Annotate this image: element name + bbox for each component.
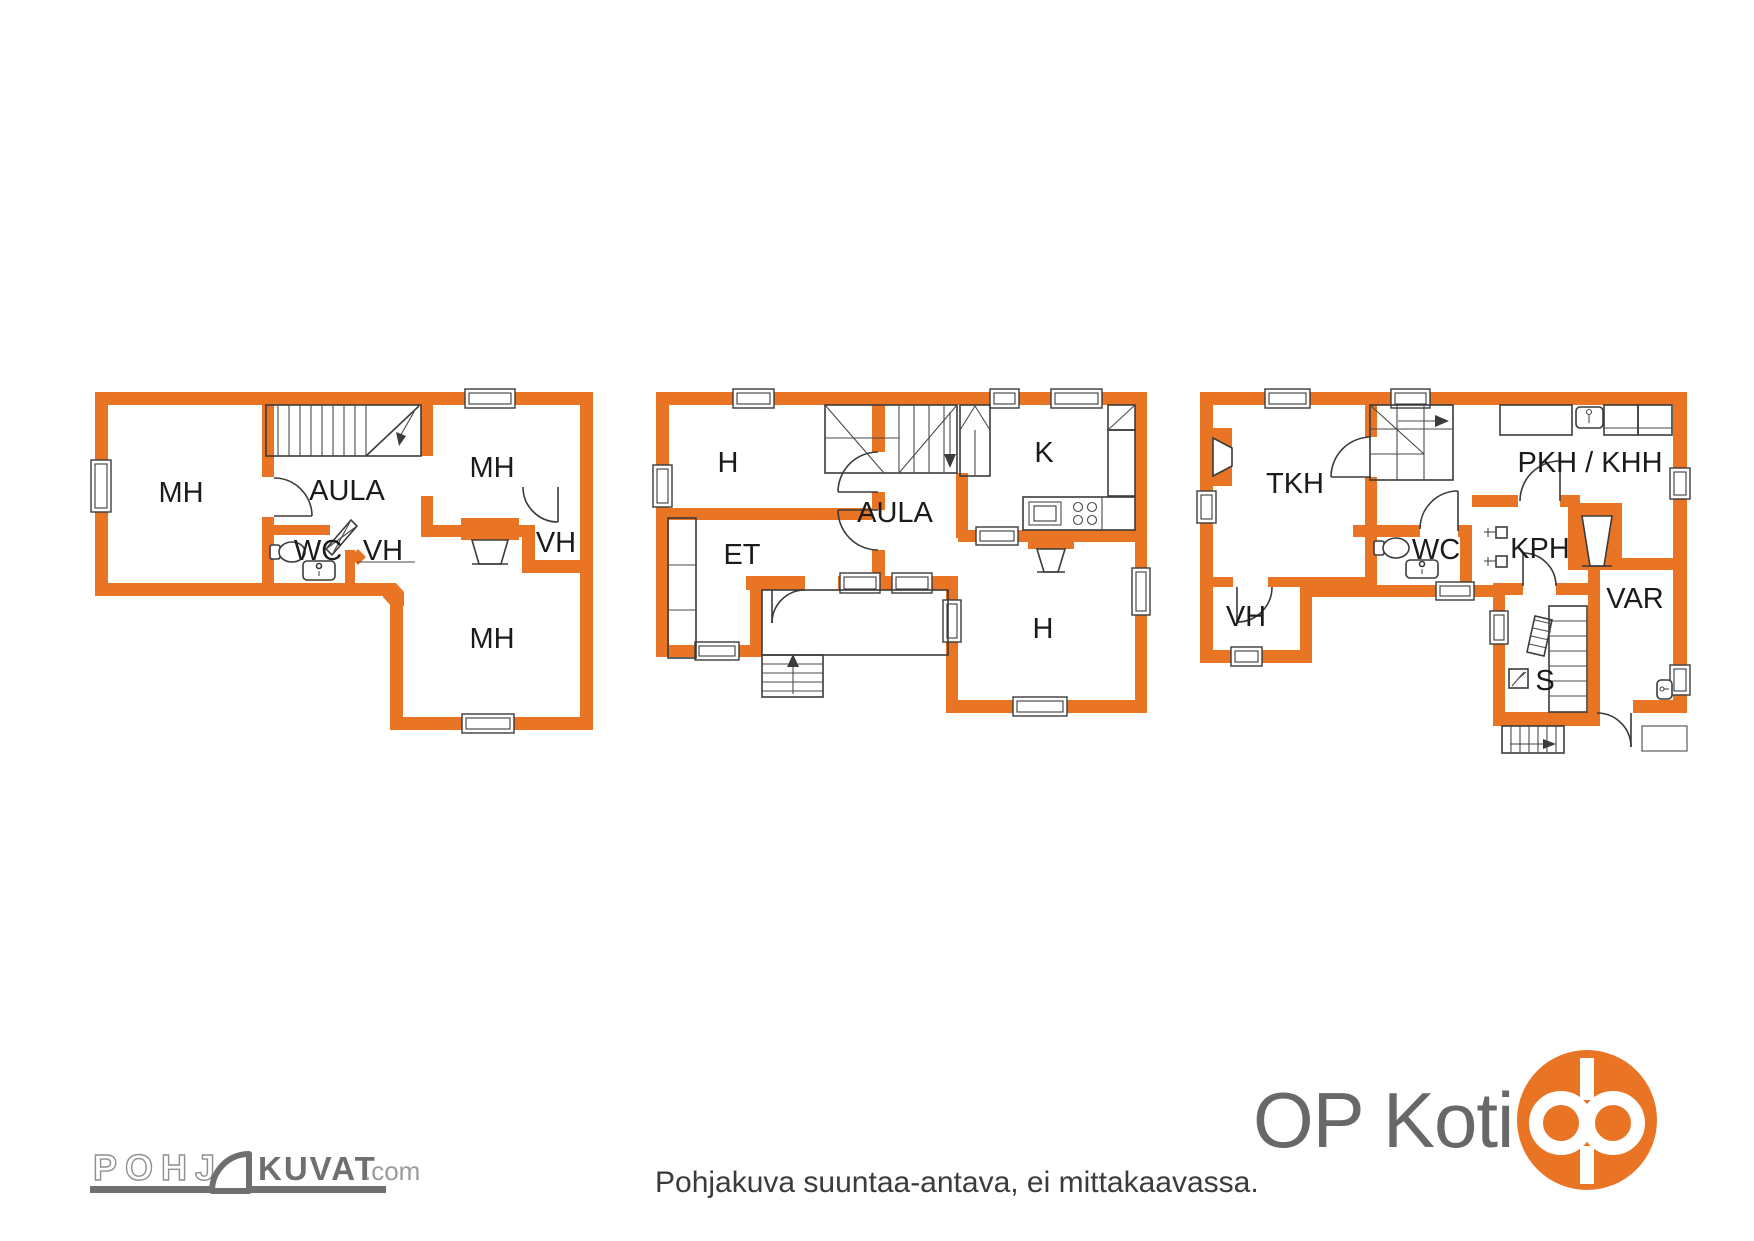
cabinet-et-icon [668,518,696,658]
room-label-mh-left: MH [158,477,203,509]
pohjakuvat-tld: .com [364,1156,420,1186]
room-label-wc-1: WC [294,535,342,567]
room-label-vh-2: VH [536,527,576,559]
room-label-var: VAR [1606,583,1663,615]
room-label-mh-bottom: MH [469,623,514,655]
room-label-s: S [1535,665,1554,697]
terrace-middle [762,590,948,655]
room-label-tkh: TKH [1266,468,1324,500]
doors-middle [772,452,878,623]
floorplan-sheet: MH AULA MH WC VH VH MH [0,0,1754,1241]
room-label-h-top: H [718,447,739,479]
heater-icon [1657,680,1672,699]
pohjakuvat-main: KUVAT [258,1150,377,1187]
room-label-wc-basement: WC [1412,534,1460,566]
op-koti-logo: OP Koti [1253,1050,1657,1190]
shower-icon [1484,527,1507,567]
room-label-pkh-khh: PKH / KHH [1517,447,1662,479]
sauna-stove-icon [1509,669,1528,688]
pohjakuvat-logo: POHJ KUVAT .com [90,1147,420,1193]
room-label-k: K [1034,437,1054,469]
room-label-aula-1: AULA [309,475,385,507]
stairs-left-icon [266,405,421,456]
floor-plan-left: MH AULA MH WC VH VH MH [91,389,593,733]
pohjakuvat-prefix: POHJ [93,1147,223,1188]
entry-stairs-icon [762,654,823,697]
op-koti-wordmark: OP Koti [1253,1076,1513,1164]
room-label-et: ET [723,539,760,571]
laundry-counter-icon [1500,405,1672,435]
stairs-middle-icon [825,405,957,473]
outdoor-stairs-icon [1502,726,1687,753]
room-label-vh-basement: VH [1226,601,1266,633]
room-label-vh-1: VH [363,535,403,567]
fireplace-middle-icon [1037,549,1065,572]
toilet-icon-basement [1374,538,1409,558]
op-logo-icon [1517,1050,1657,1190]
closet-middle-icon [960,405,990,476]
floor-plan-middle: H ET AULA K H [653,389,1150,716]
floorplan-drawing: MH AULA MH WC VH VH MH [0,0,1754,1241]
floor-plan-right: TKH VH WC PKH / KHH KPH VAR S [1197,389,1690,753]
disclaimer-text: Pohjakuva suuntaa-antava, ei mittakaavas… [655,1166,1259,1199]
room-label-mh-topright: MH [469,452,514,484]
room-label-h-bottom: H [1033,613,1054,645]
room-label-kph: KPH [1510,533,1570,565]
room-label-aula-2: AULA [857,497,933,529]
stairs-right-icon [1370,405,1453,480]
